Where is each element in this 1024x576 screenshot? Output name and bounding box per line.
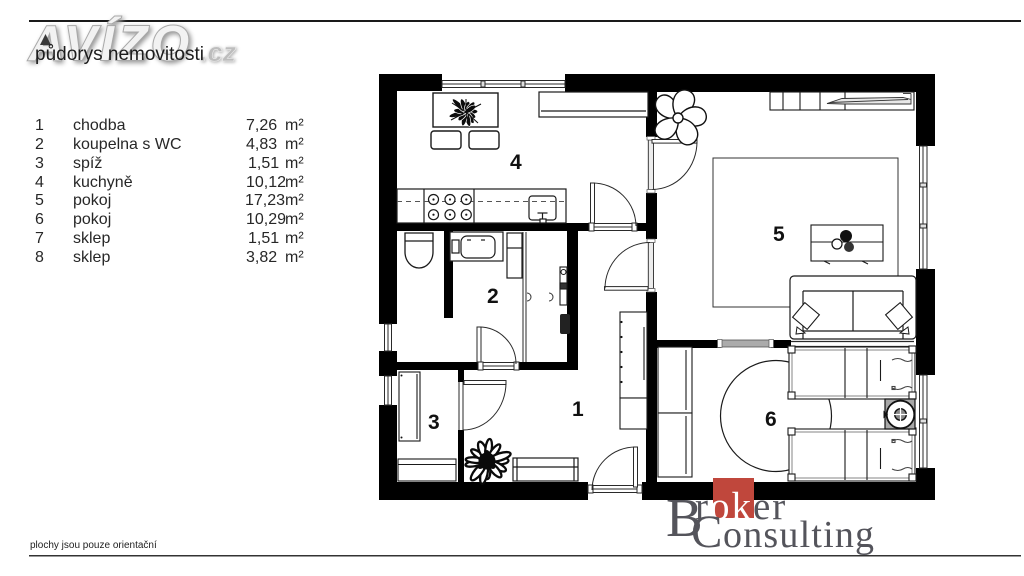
- svg-text:půdorys nemovitosti: půdorys nemovitosti: [35, 44, 204, 65]
- svg-text:3: 3: [428, 411, 440, 434]
- svg-text:m²: m²: [285, 155, 304, 172]
- svg-text:2: 2: [35, 136, 44, 153]
- svg-text:spíž: spíž: [73, 155, 102, 172]
- svg-text:6: 6: [35, 211, 44, 228]
- svg-text:4,83: 4,83: [246, 136, 277, 153]
- svg-text:6: 6: [765, 408, 777, 431]
- svg-text:5: 5: [773, 223, 785, 246]
- svg-text:1,51: 1,51: [248, 155, 279, 172]
- svg-text:3,82: 3,82: [246, 249, 277, 266]
- svg-text:3: 3: [35, 155, 44, 172]
- svg-text:4: 4: [35, 174, 44, 191]
- svg-text:m²: m²: [285, 174, 304, 191]
- svg-text:chodba: chodba: [73, 117, 126, 134]
- svg-text:1,51: 1,51: [248, 230, 279, 247]
- svg-text:1: 1: [35, 117, 44, 134]
- svg-text:m²: m²: [285, 230, 304, 247]
- svg-text:10,12: 10,12: [246, 174, 286, 191]
- svg-text:4: 4: [510, 151, 522, 174]
- svg-text:pokoj: pokoj: [73, 211, 111, 228]
- svg-text:8: 8: [35, 249, 44, 266]
- svg-text:sklep: sklep: [73, 230, 110, 247]
- svg-text:m²: m²: [285, 211, 304, 228]
- svg-text:5: 5: [35, 192, 44, 209]
- svg-text:kuchyně: kuchyně: [73, 174, 133, 191]
- svg-text:.cz: .cz: [200, 37, 237, 67]
- svg-text:m²: m²: [285, 136, 304, 153]
- svg-text:onsulting: onsulting: [723, 514, 875, 556]
- svg-text:m²: m²: [285, 192, 304, 209]
- svg-text:C: C: [691, 506, 722, 558]
- svg-text:pokoj: pokoj: [73, 192, 111, 209]
- svg-text:koupelna s WC: koupelna s WC: [73, 136, 182, 153]
- svg-text:10,29: 10,29: [246, 211, 286, 228]
- svg-text:sklep: sklep: [73, 249, 110, 266]
- svg-text:7: 7: [35, 230, 44, 247]
- svg-text:1: 1: [572, 398, 584, 421]
- svg-text:2: 2: [487, 285, 499, 308]
- svg-text:7,26: 7,26: [246, 117, 277, 134]
- svg-text:17,23: 17,23: [245, 192, 285, 209]
- svg-text:plochy jsou pouze orientační: plochy jsou pouze orientační: [30, 540, 157, 551]
- svg-text:m²: m²: [285, 117, 304, 134]
- svg-text:m²: m²: [285, 249, 304, 266]
